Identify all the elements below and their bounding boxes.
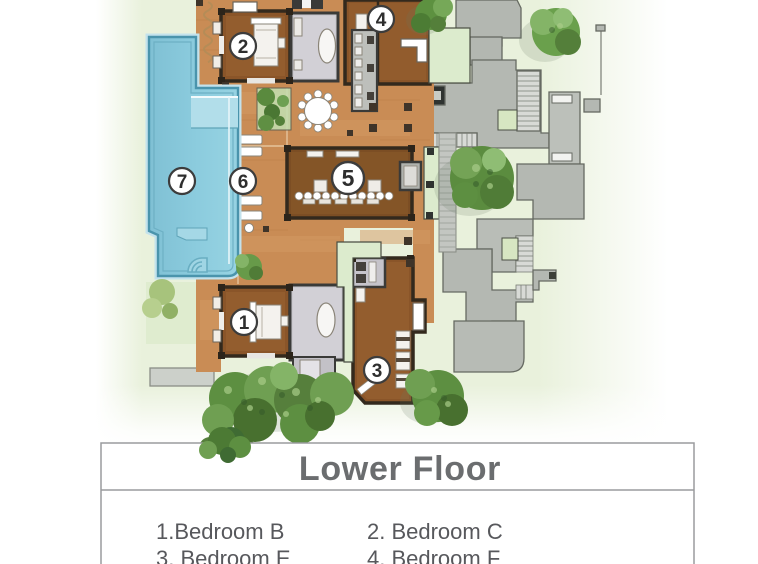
svg-text:3. Bedroom E: 3. Bedroom E [156, 546, 291, 564]
svg-text:3: 3 [372, 361, 383, 382]
svg-text:7: 7 [177, 172, 188, 193]
svg-text:Lower Floor: Lower Floor [299, 450, 501, 488]
svg-text:2: 2 [238, 37, 249, 58]
svg-text:4. Bedroom F: 4. Bedroom F [367, 546, 500, 564]
svg-text:2. Bedroom C: 2. Bedroom C [367, 519, 503, 544]
svg-text:6: 6 [238, 172, 249, 193]
svg-text:1: 1 [239, 313, 250, 334]
svg-text:5: 5 [342, 165, 355, 191]
svg-text:4: 4 [376, 10, 387, 31]
svg-text:1.Bedroom B: 1.Bedroom B [156, 519, 284, 544]
